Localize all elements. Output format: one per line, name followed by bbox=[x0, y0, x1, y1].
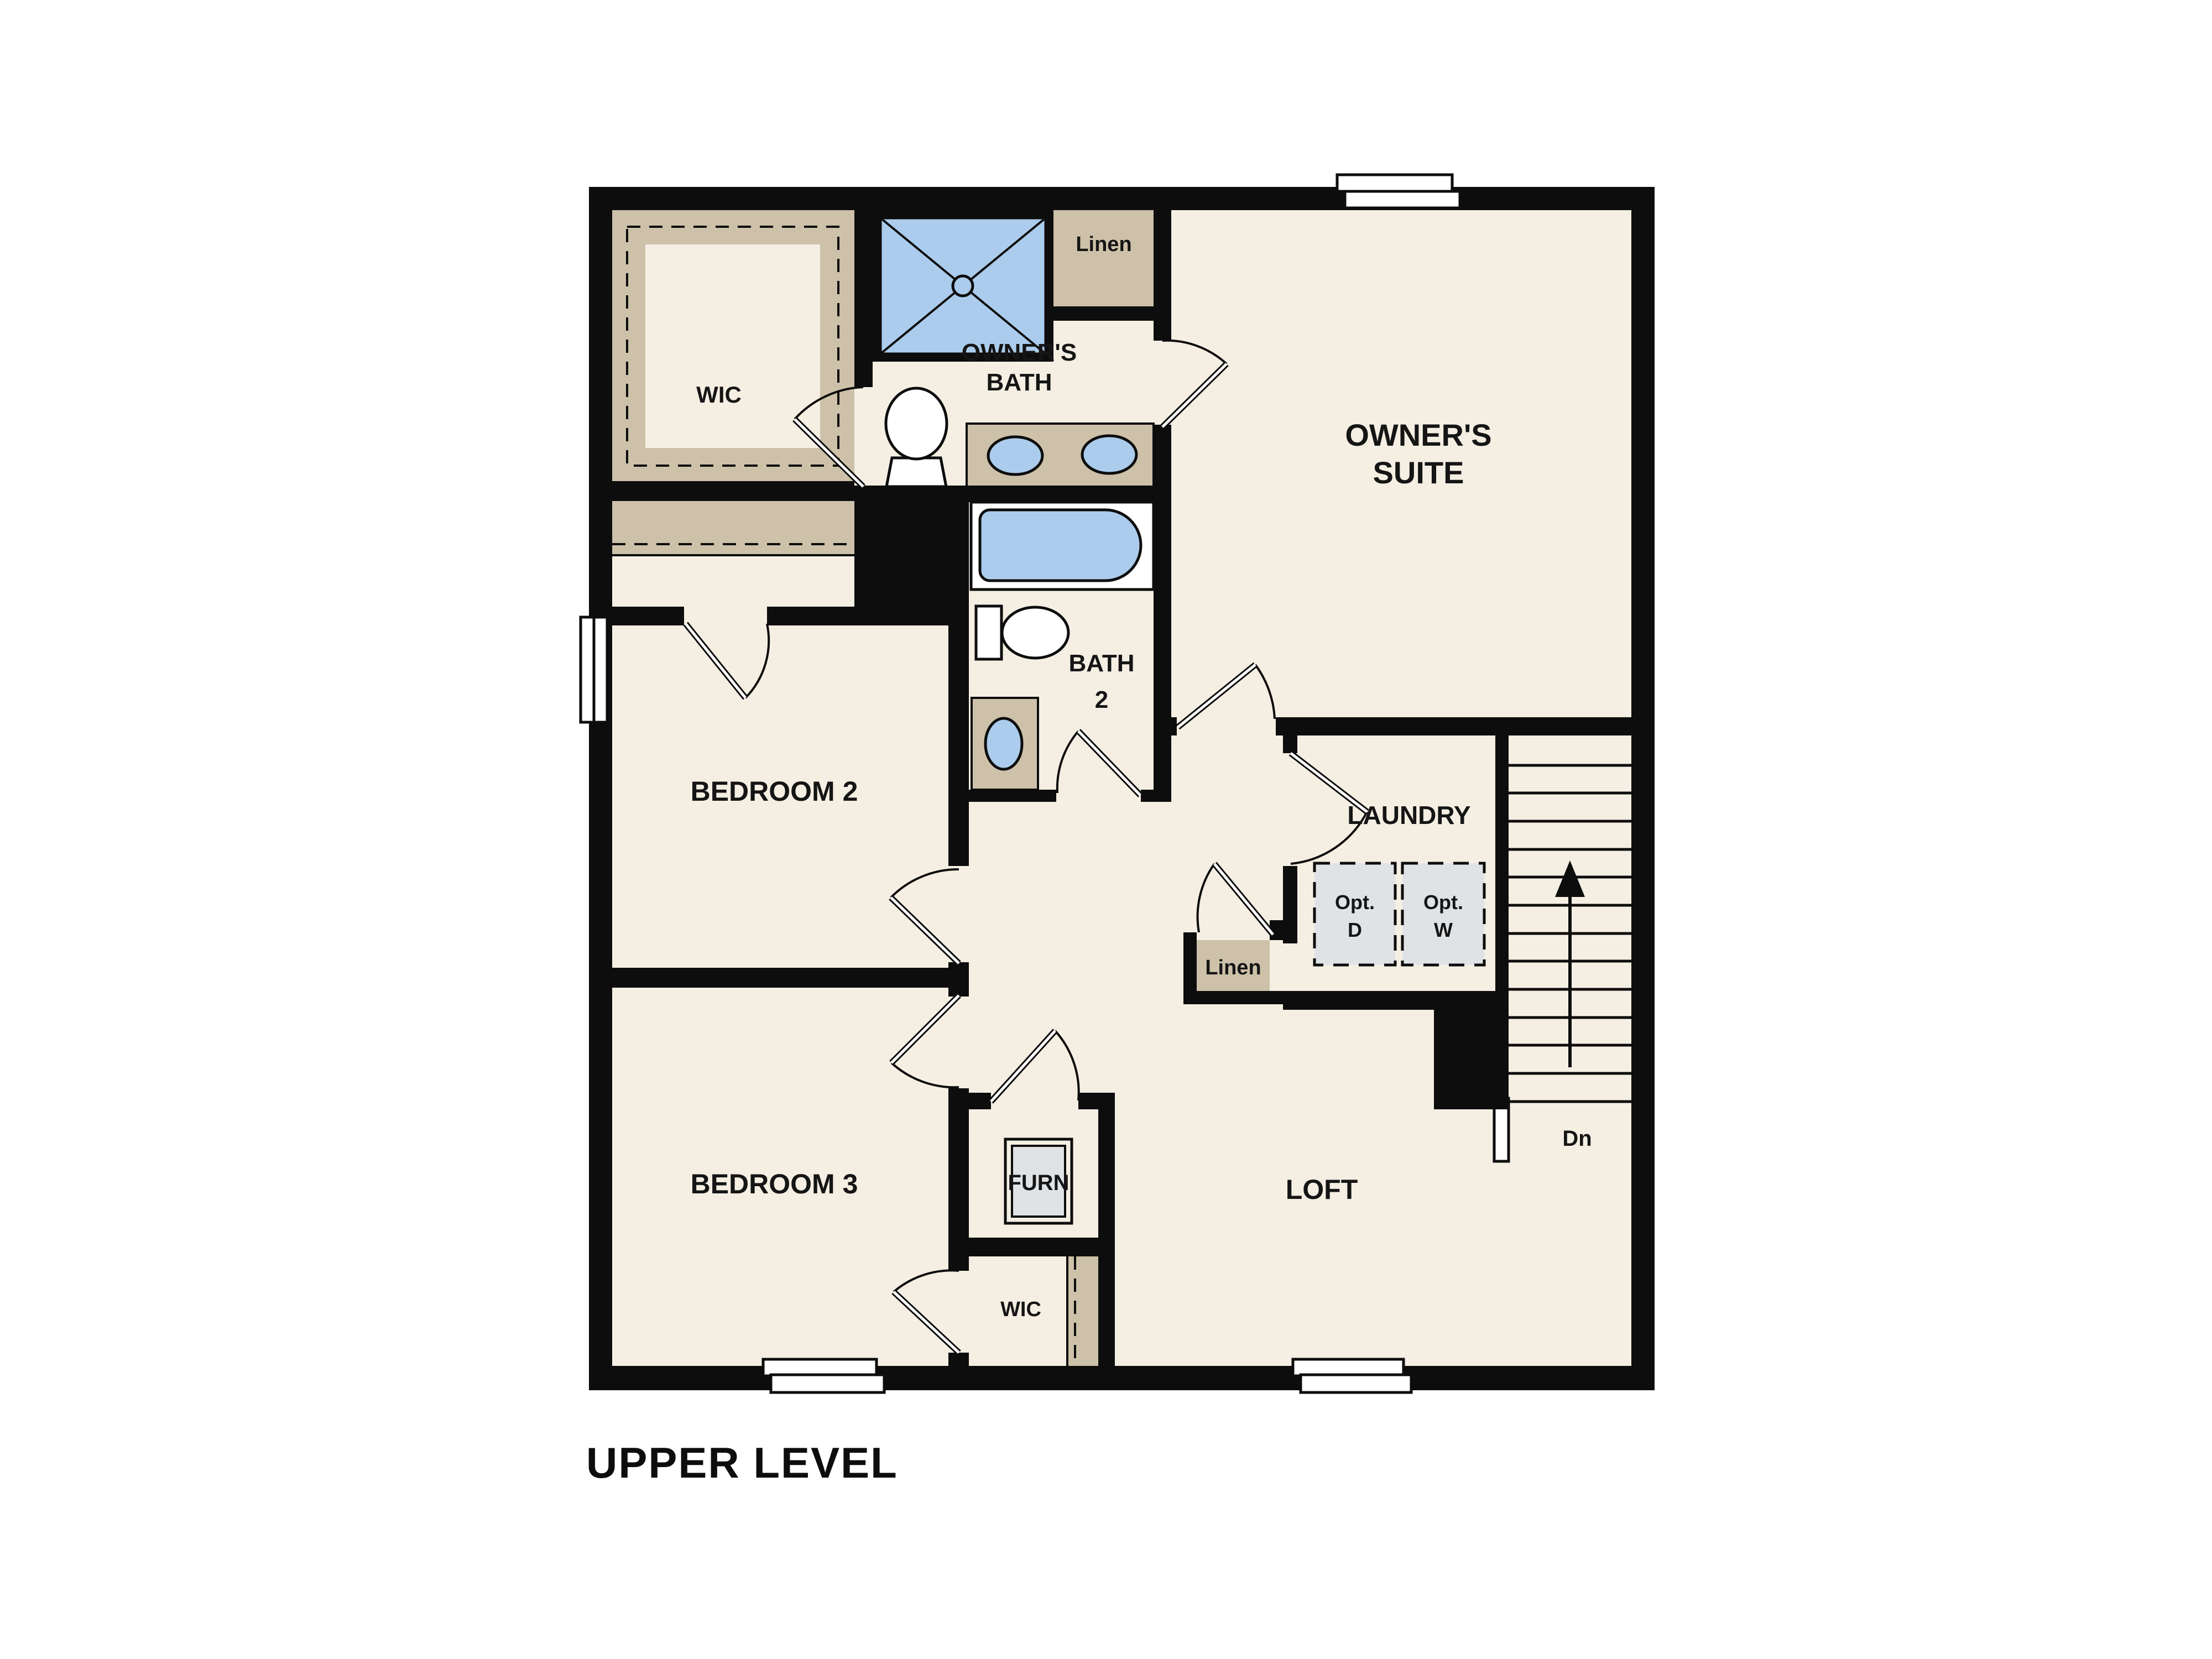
owners-bath-vanity bbox=[967, 424, 1154, 487]
bedroom3-label: BEDROOM 3 bbox=[691, 1168, 858, 1199]
furnace-label: FURN bbox=[1008, 1171, 1069, 1195]
linen-hall-label: Linen bbox=[1205, 956, 1261, 979]
wic-upper-label: WIC bbox=[696, 382, 742, 408]
bath2-label-1: BATH bbox=[1069, 650, 1135, 677]
linen-upper-label: Linen bbox=[1076, 233, 1131, 256]
vanity-sink-right bbox=[1082, 436, 1136, 473]
optional-washer-box bbox=[1402, 863, 1484, 965]
owners-suite-label-1: OWNER'S bbox=[1345, 418, 1491, 452]
linen-upper-closet bbox=[1053, 210, 1154, 306]
bathtub-fixture bbox=[971, 502, 1154, 589]
plan-title: UPPER LEVEL bbox=[586, 1438, 898, 1487]
laundry-label: LAUNDRY bbox=[1347, 801, 1470, 830]
wall-outer-left bbox=[589, 187, 612, 1390]
loft-label: LOFT bbox=[1286, 1174, 1358, 1205]
owners-bath-toilet bbox=[886, 388, 947, 487]
optional-dryer-box bbox=[1314, 863, 1395, 965]
owners-bath-label-2: BATH bbox=[987, 369, 1052, 396]
wall-outer-top bbox=[589, 187, 1655, 210]
opt-washer-label-1: Opt. bbox=[1423, 891, 1463, 914]
window-bottom-bedroom3 bbox=[763, 1359, 884, 1392]
vanity-sink-left bbox=[988, 437, 1042, 474]
bath2-label-2: 2 bbox=[1095, 686, 1108, 713]
bedroom2-closet bbox=[612, 501, 854, 556]
bath2-toilet bbox=[976, 606, 1068, 659]
bath2-sink bbox=[972, 698, 1038, 790]
wall-outer-right bbox=[1631, 187, 1655, 1390]
opt-dryer-label-1: Opt. bbox=[1335, 891, 1375, 914]
owners-suite-label-2: SUITE bbox=[1373, 455, 1464, 490]
opt-dryer-label-2: D bbox=[1348, 919, 1362, 941]
opt-washer-label-2: W bbox=[1434, 919, 1453, 941]
window-top-owners-suite bbox=[1337, 175, 1460, 208]
window-left-bedroom2 bbox=[581, 617, 607, 722]
owners-bath-label-1: OWNER'S bbox=[962, 339, 1077, 366]
bedroom2-label: BEDROOM 2 bbox=[691, 776, 858, 807]
wic-lower-label: WIC bbox=[1000, 1298, 1041, 1321]
window-bottom-loft bbox=[1293, 1359, 1411, 1392]
stairs-down-label: Dn bbox=[1562, 1126, 1592, 1151]
floor-plan-page: WIC OWNER'S BATH Linen OWNER'S SUITE BED… bbox=[0, 0, 2212, 1659]
floor-plan-svg: WIC OWNER'S BATH Linen OWNER'S SUITE BED… bbox=[0, 0, 2212, 1659]
wic-lower-closet-rod bbox=[1067, 1256, 1098, 1366]
wall-outer-bottom bbox=[589, 1366, 1655, 1390]
